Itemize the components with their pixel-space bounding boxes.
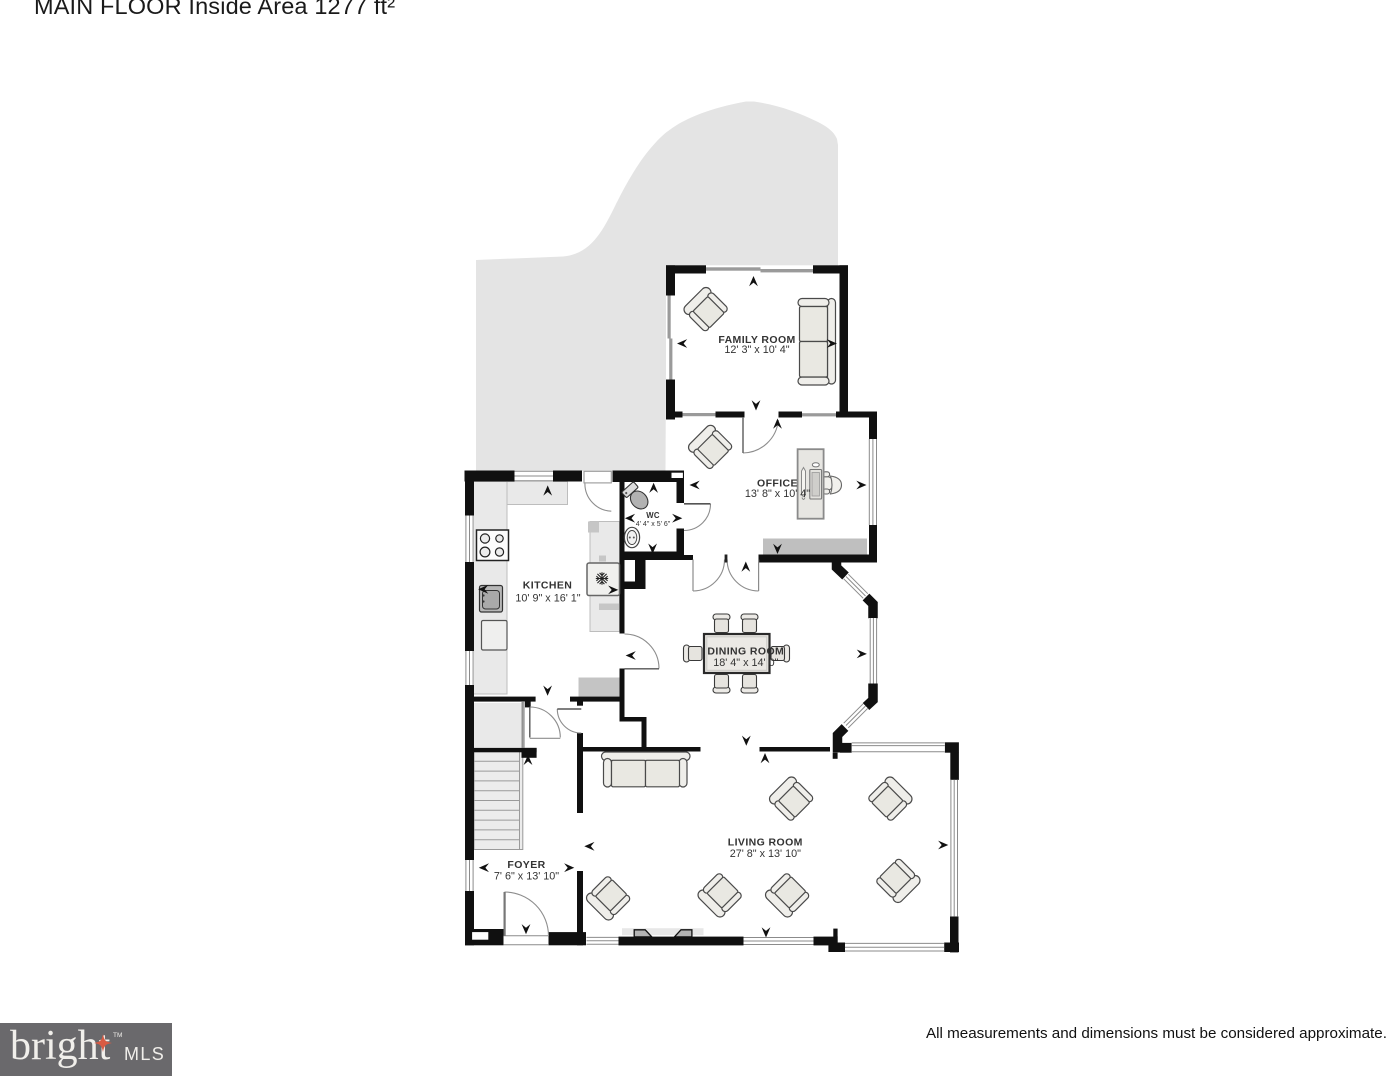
svg-text:KITCHEN: KITCHEN: [523, 580, 572, 592]
svg-text:18' 4" x 14' 0": 18' 4" x 14' 0": [713, 657, 778, 669]
svg-text:4' 4" x 5' 6": 4' 4" x 5' 6": [636, 521, 671, 528]
svg-text:13' 8" x 10' 4": 13' 8" x 10' 4": [745, 488, 810, 500]
svg-text:LIVING ROOM: LIVING ROOM: [728, 836, 803, 848]
svg-text:DINING ROOM: DINING ROOM: [707, 645, 784, 657]
svg-text:12' 3" x 10' 4": 12' 3" x 10' 4": [724, 344, 789, 356]
svg-text:WC: WC: [646, 511, 660, 520]
svg-text:10' 9" x 16' 1": 10' 9" x 16' 1": [515, 592, 580, 604]
svg-text:27' 8" x 13' 10": 27' 8" x 13' 10": [730, 848, 801, 860]
svg-text:7' 6" x 13' 10": 7' 6" x 13' 10": [494, 870, 559, 882]
